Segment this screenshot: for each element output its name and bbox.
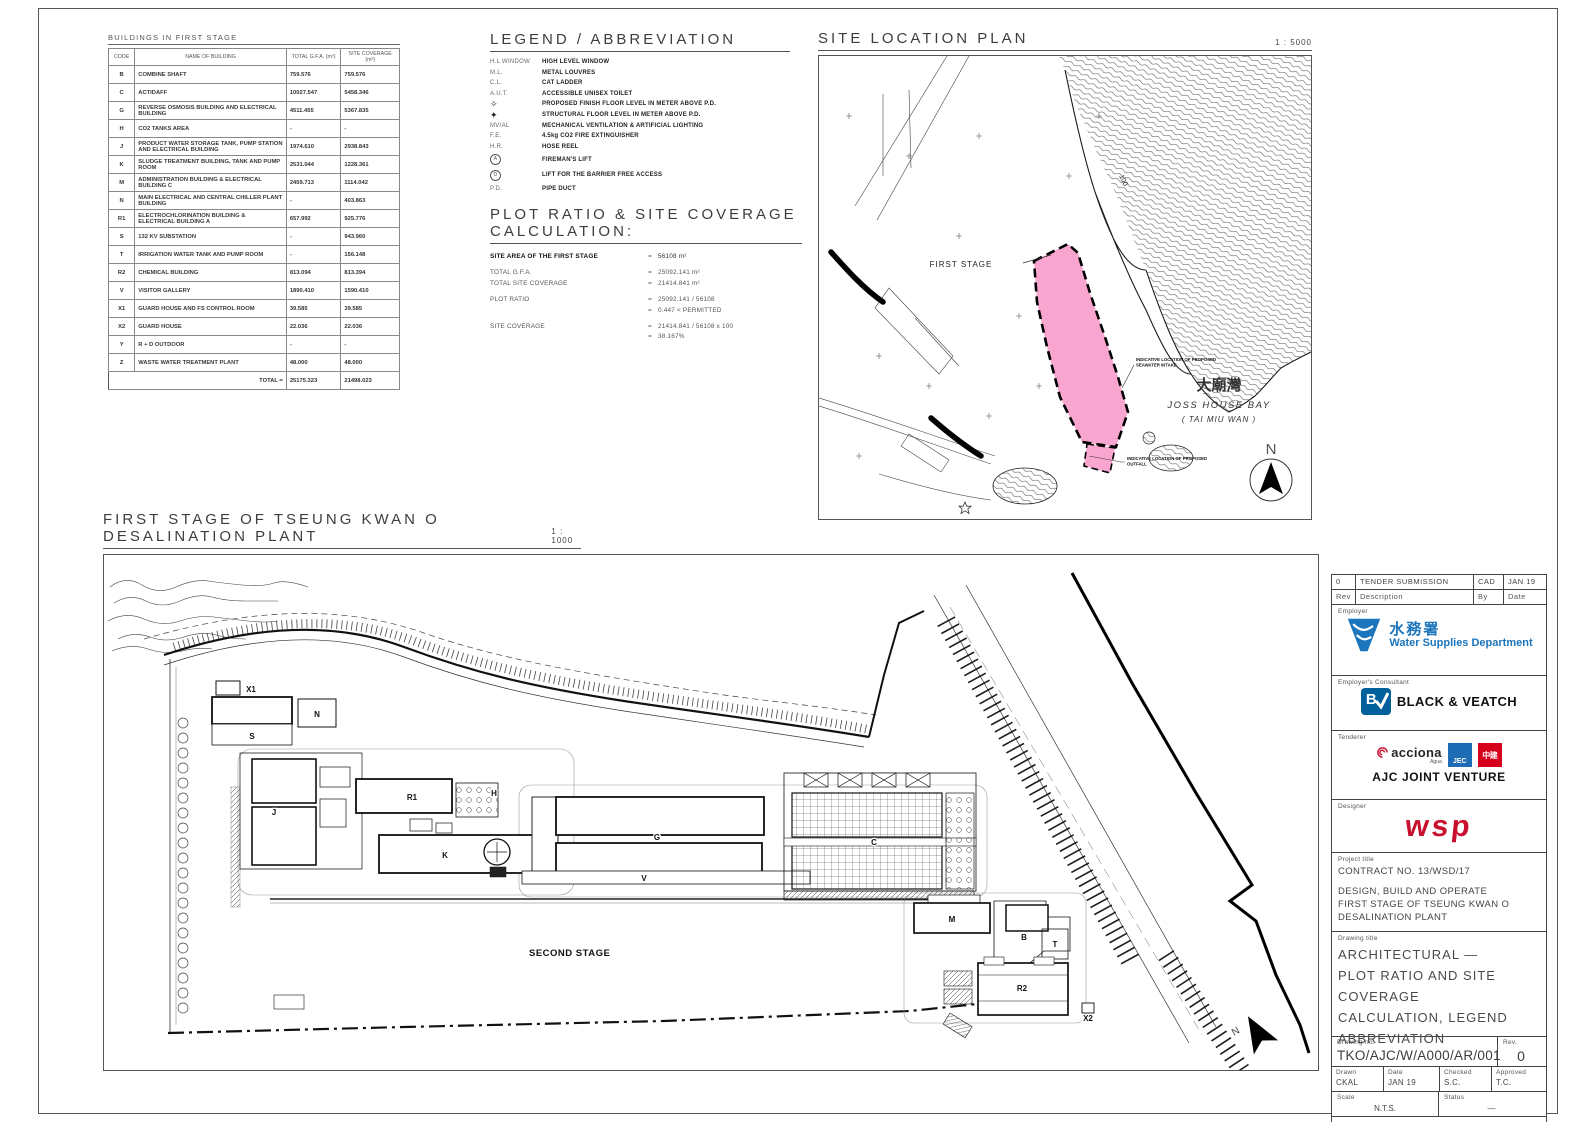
- calc-line: =0.447 < PERMITTED: [490, 307, 802, 314]
- legend-symbol: H.R.: [490, 144, 542, 150]
- legend-description: FIREMAN'S LIFT: [542, 157, 592, 163]
- legend-description: PIPE DUCT: [542, 186, 576, 192]
- legend-item: P.D.PIPE DUCT: [490, 186, 790, 192]
- plan-north-label: N: [1230, 1025, 1242, 1038]
- bay-name-alt: ( TAI MIU WAN ): [1182, 415, 1256, 424]
- rev-by: CAD: [1474, 575, 1504, 589]
- building-row: HCO2 TANKS AREA--: [109, 120, 400, 138]
- drawing-title-line: ARCHITECTURAL —: [1338, 944, 1540, 965]
- legend-symbol: ✧: [490, 101, 542, 107]
- rev-value: 0: [1503, 1048, 1539, 1064]
- building-row: GREVERSE OSMOSIS BUILDING AND ELECTRICAL…: [109, 102, 400, 120]
- label-x1: X1: [246, 685, 256, 694]
- buildings-table: CODENAME OF BUILDINGTOTAL G.F.A. (m²)SIT…: [108, 48, 400, 390]
- rev-number: 0: [1332, 575, 1356, 589]
- legend-symbol: A: [490, 154, 542, 165]
- main-plan-scale: 1 : 1000: [551, 527, 581, 545]
- legend-item: A.U.T.ACCESSIBLE UNISEX TOILET: [490, 91, 790, 97]
- label-r1: R1: [407, 793, 418, 802]
- project-title-label: Project title: [1338, 856, 1540, 863]
- label-v: V: [641, 874, 647, 883]
- breakwater-strips: [831, 252, 981, 456]
- north-label: N: [1266, 441, 1277, 458]
- legend-description: HOSE REEL: [542, 144, 578, 150]
- drawing-title-line: PLOT RATIO AND SITE COVERAGE: [1338, 965, 1540, 1007]
- drawing-title-section: Drawing title ARCHITECTURAL —PLOT RATIO …: [1332, 932, 1546, 1037]
- main-plan-title: FIRST STAGE OF TSEUNG KWAN O DESALINATIO…: [103, 511, 581, 549]
- bay-name-cn: 大廟灣: [1196, 376, 1241, 394]
- wsp-logo: wsp: [1336, 812, 1541, 842]
- total-gfa: 25175.323: [286, 372, 341, 390]
- jec-logo: JEC: [1448, 743, 1472, 767]
- scale-status-row: ScaleN.T.S. Status—: [1332, 1092, 1546, 1117]
- column-header: TOTAL G.F.A. (m²): [286, 49, 341, 66]
- drawn-value: CKAL: [1336, 1078, 1379, 1087]
- revision-entry-row: 0 TENDER SUBMISSION CAD JAN 19: [1332, 575, 1546, 590]
- building-row: VVISITOR GALLERY1890.4101590.410: [109, 282, 400, 300]
- rev-date: JAN 19: [1504, 575, 1544, 589]
- legend-symbol: A.U.T.: [490, 91, 542, 97]
- calc-line: PLOT RATIO=25092.141 / 56108: [490, 296, 802, 303]
- legend-symbol: MV/AL: [490, 123, 542, 129]
- buildings-table-section: BUILDINGS IN FIRST STAGE CODENAME OF BUI…: [108, 33, 400, 390]
- title-block: 0 TENDER SUBMISSION CAD JAN 19 Rev Descr…: [1331, 574, 1547, 1122]
- rev-description: TENDER SUBMISSION: [1356, 575, 1474, 589]
- legend-description: ACCESSIBLE UNISEX TOILET: [542, 91, 632, 97]
- calculation-rows: SITE AREA OF THE FIRST STAGE=56108 m²TOT…: [490, 253, 802, 340]
- legend-description: PROPOSED FINISH FLOOR LEVEL IN METER ABO…: [542, 101, 716, 107]
- drawing-sheet: BUILDINGS IN FIRST STAGE CODENAME OF BUI…: [0, 0, 1587, 1122]
- scale-value: N.T.S.: [1337, 1104, 1433, 1113]
- site-location-plan-section: SITE LOCATION PLAN 1 : 5000 100: [818, 30, 1312, 525]
- building-row: MADMINISTRATION BUILDING & ELECTRICAL BU…: [109, 174, 400, 192]
- employer-name-en: Water Supplies Department: [1389, 637, 1532, 649]
- consultant-section: Employer's Consultant B BLACK & VEATCH: [1332, 676, 1546, 731]
- project-title-lines: CONTRACT NO. 13/WSD/17DESIGN, BUILD AND …: [1338, 865, 1540, 924]
- revision-header-row: Rev Description By Date: [1332, 590, 1546, 605]
- legend-item: DLIFT FOR THE BARRIER FREE ACCESS: [490, 170, 790, 181]
- legend-description: 4.5kg CO2 FIRE EXTINGUISHER: [542, 133, 639, 139]
- site-location-scale: 1 : 5000: [1275, 38, 1312, 47]
- calc-line: =38.167%: [490, 333, 802, 340]
- calc-line: SITE COVERAGE=21414.841 / 56108 x 100: [490, 323, 802, 330]
- drawing-title-line: CALCULATION, LEGEND: [1338, 1007, 1540, 1028]
- building-row: ZWASTE WATER TREATMENT PLANT48.00048.000: [109, 354, 400, 372]
- drawing-title-label: Drawing title: [1338, 935, 1540, 942]
- building-row: S132 KV SUBSTATION-943.960: [109, 228, 400, 246]
- label-n: N: [314, 710, 320, 719]
- svg-text:INDICATIVE LOCATION OF PROPOSE: INDICATIVE LOCATION OF PROPOSED: [1136, 357, 1216, 362]
- label-j: J: [272, 808, 276, 817]
- approved-value: T.C.: [1496, 1078, 1540, 1087]
- legend-symbol: D: [490, 170, 542, 181]
- legend-description: MECHANICAL VENTILATION & ARTIFICIAL LIGH…: [542, 123, 703, 129]
- copyright-notice: ©COPYRIGHT RESERVED: [1332, 1117, 1546, 1122]
- legend-item: M.L.METAL LOUVRES: [490, 70, 790, 76]
- legend-item: H.L WINDOWHIGH LEVEL WINDOW: [490, 59, 790, 65]
- project-title-line: CONTRACT NO. 13/WSD/17: [1338, 865, 1540, 878]
- legend-section: LEGEND / ABBREVIATION H.L WINDOWHIGH LEV…: [490, 31, 790, 196]
- acciona-logo: acciona Agua: [1376, 745, 1442, 765]
- tenderer-section: Tenderer acciona Agua JEC 中建 AJC JOINT V…: [1332, 731, 1546, 800]
- project-title-section: Project title CONTRACT NO. 13/WSD/17DESI…: [1332, 853, 1546, 932]
- employer-name-cn: 水務署: [1389, 622, 1532, 637]
- tree-row: [178, 718, 188, 1013]
- reclamation-linework: [819, 56, 995, 500]
- legend-description: METAL LOUVRES: [542, 70, 595, 76]
- cscec-logo: 中建: [1478, 743, 1502, 767]
- column-header: CODE: [109, 49, 135, 66]
- acciona-sub-label: Agua: [1430, 759, 1442, 765]
- north-arrow: N: [1250, 441, 1292, 501]
- building-row: JPRODUCT WATER STORAGE TANK, PUMP STATIO…: [109, 138, 400, 156]
- legend-item: ✧PROPOSED FINISH FLOOR LEVEL IN METER AB…: [490, 101, 790, 107]
- legend-symbol: H.L WINDOW: [490, 59, 542, 65]
- legend-description: LIFT FOR THE BARRIER FREE ACCESS: [542, 172, 662, 178]
- calc-line: TOTAL G.F.A.=25092.141 m²: [490, 269, 802, 276]
- drawing-no-value: TKO/AJC/W/A000/AR/001: [1337, 1048, 1492, 1063]
- label-h: H: [491, 789, 497, 798]
- drawing-title-lines: ARCHITECTURAL —PLOT RATIO AND SITE COVER…: [1338, 944, 1540, 1049]
- legend-symbol: M.L.: [490, 70, 542, 76]
- site-location-map: 100: [818, 55, 1312, 520]
- calc-line: TOTAL SITE COVERAGE=21414.841 m²: [490, 280, 802, 287]
- designer-label: Designer: [1338, 803, 1540, 810]
- acciona-swirl-icon: [1376, 746, 1389, 759]
- label-g: G: [654, 833, 660, 842]
- svg-text:SEAWATER INTAKE: SEAWATER INTAKE: [1136, 363, 1177, 368]
- legend-item: F.E.4.5kg CO2 FIRE EXTINGUISHER: [490, 133, 790, 139]
- label-s: S: [249, 732, 255, 741]
- consultant-name: BLACK & VEATCH: [1397, 694, 1517, 709]
- signoff-row: DrawnCKAL DateJAN 19 CheckedS.C. Approve…: [1332, 1067, 1546, 1092]
- first-stage-highlight-area: [1034, 244, 1128, 473]
- second-stage-label: SECOND STAGE: [529, 948, 610, 959]
- tenderer-label: Tenderer: [1338, 734, 1540, 741]
- project-title-line: FIRST STAGE OF TSEUNG KWAN O: [1338, 898, 1540, 911]
- legend-item: H.R.HOSE REEL: [490, 144, 790, 150]
- building-row: YR + D OUTDOOR--: [109, 336, 400, 354]
- legend-title: LEGEND / ABBREVIATION: [490, 31, 790, 52]
- building-row: R1ELECTROCHLORINATION BUILDING & ELECTRI…: [109, 210, 400, 228]
- table-header-row: CODENAME OF BUILDINGTOTAL G.F.A. (m²)SIT…: [109, 49, 400, 66]
- tenderer-name: AJC JOINT VENTURE: [1338, 770, 1540, 784]
- label-c: C: [871, 838, 877, 847]
- svg-text:OUTFALL: OUTFALL: [1127, 462, 1147, 467]
- legend-description: STRUCTURAL FLOOR LEVEL IN METER ABOVE P.…: [542, 112, 701, 118]
- label-b: B: [1021, 933, 1027, 942]
- bay-name-en: JOSS HOUSE BAY: [1166, 400, 1270, 411]
- date-value: JAN 19: [1388, 1078, 1435, 1087]
- table-total-row: TOTAL = 25175.323 21498.023: [109, 372, 400, 390]
- building-row: CACTIDAFF10027.5475458.346: [109, 84, 400, 102]
- label-x2: X2: [1083, 1014, 1093, 1023]
- checked-value: S.C.: [1444, 1078, 1487, 1087]
- building-row: X2GUARD HOUSE22.03622.036: [109, 318, 400, 336]
- project-title-line: DESALINATION PLANT: [1338, 911, 1540, 924]
- legend-symbol: ✦: [490, 112, 542, 118]
- plan-north-arrow: N: [1229, 1009, 1278, 1058]
- legend-symbol: C.L.: [490, 80, 542, 86]
- buildings-table-title: BUILDINGS IN FIRST STAGE: [108, 33, 400, 45]
- building-row: KSLUDGE TREATMENT BUILDING, TANK AND PUM…: [109, 156, 400, 174]
- legend-item: C.L.CAT LADDER: [490, 80, 790, 86]
- total-coverage: 21498.023: [341, 372, 400, 390]
- building-row: R2CHEMICAL BUILDING813.094813.394: [109, 264, 400, 282]
- project-title-line: DESIGN, BUILD AND OPERATE: [1338, 885, 1540, 898]
- designer-section: Designer wsp: [1332, 800, 1546, 853]
- column-header: NAME OF BUILDING: [135, 49, 287, 66]
- first-stage-plan-section: FIRST STAGE OF TSEUNG KWAN O DESALINATIO…: [103, 511, 1321, 1076]
- label-t: T: [1053, 940, 1058, 949]
- label-r2: R2: [1017, 984, 1028, 993]
- employer-section: Employer 水務署 Water Supplies Department: [1332, 605, 1546, 676]
- plot-ratio-title: PLOT RATIO & SITE COVERAGE CALCULATION:: [490, 206, 802, 244]
- first-stage-label: FIRST STAGE: [930, 260, 993, 269]
- buildings: [212, 681, 1094, 1038]
- building-row: BCOMBINE SHAFT759.576759.576: [109, 66, 400, 84]
- legend-description: HIGH LEVEL WINDOW: [542, 59, 609, 65]
- black-veatch-logo-icon: B: [1361, 688, 1391, 715]
- site-location-title: SITE LOCATION PLAN 1 : 5000: [818, 30, 1312, 51]
- plot-ratio-section: PLOT RATIO & SITE COVERAGE CALCULATION: …: [490, 206, 802, 344]
- drawing-title-line: ABBREVIATION: [1338, 1028, 1540, 1049]
- wsd-logo-icon: [1345, 617, 1383, 653]
- legend-item: MV/ALMECHANICAL VENTILATION & ARTIFICIAL…: [490, 123, 790, 129]
- legend-rows: H.L WINDOWHIGH LEVEL WINDOWM.L.METAL LOU…: [490, 59, 790, 192]
- legend-item: AFIREMAN'S LIFT: [490, 154, 790, 165]
- legend-symbol: F.E.: [490, 133, 542, 139]
- legend-symbol: P.D.: [490, 186, 542, 192]
- status-value: —: [1444, 1104, 1539, 1113]
- consultant-label: Employer's Consultant: [1338, 679, 1540, 686]
- first-stage-site-plan: X1 S N J R1 H K G V C M B T R2 X2 SECOND…: [103, 554, 1319, 1071]
- column-header: SITE COVERAGE (m²): [341, 49, 400, 66]
- label-k: K: [442, 851, 448, 860]
- svg-text:INDICATIVE LOCATION OF PROPOSE: INDICATIVE LOCATION OF PROPOSED: [1127, 456, 1207, 461]
- legend-description: CAT LADDER: [542, 80, 583, 86]
- building-row: TIRRIGATION WATER TANK AND PUMP ROOM-156…: [109, 246, 400, 264]
- building-row: X1GUARD HOUSE AND FS CONTROL ROOM39.5853…: [109, 300, 400, 318]
- employer-label: Employer: [1338, 608, 1540, 615]
- project-title-line: [1338, 878, 1540, 885]
- calc-line: SITE AREA OF THE FIRST STAGE=56108 m²: [490, 253, 802, 260]
- building-row: NMAIN ELECTRICAL AND CENTRAL CHILLER PLA…: [109, 192, 400, 210]
- label-m: M: [949, 915, 956, 924]
- legend-item: ✦STRUCTURAL FLOOR LEVEL IN METER ABOVE P…: [490, 112, 790, 118]
- total-label: TOTAL =: [109, 372, 287, 390]
